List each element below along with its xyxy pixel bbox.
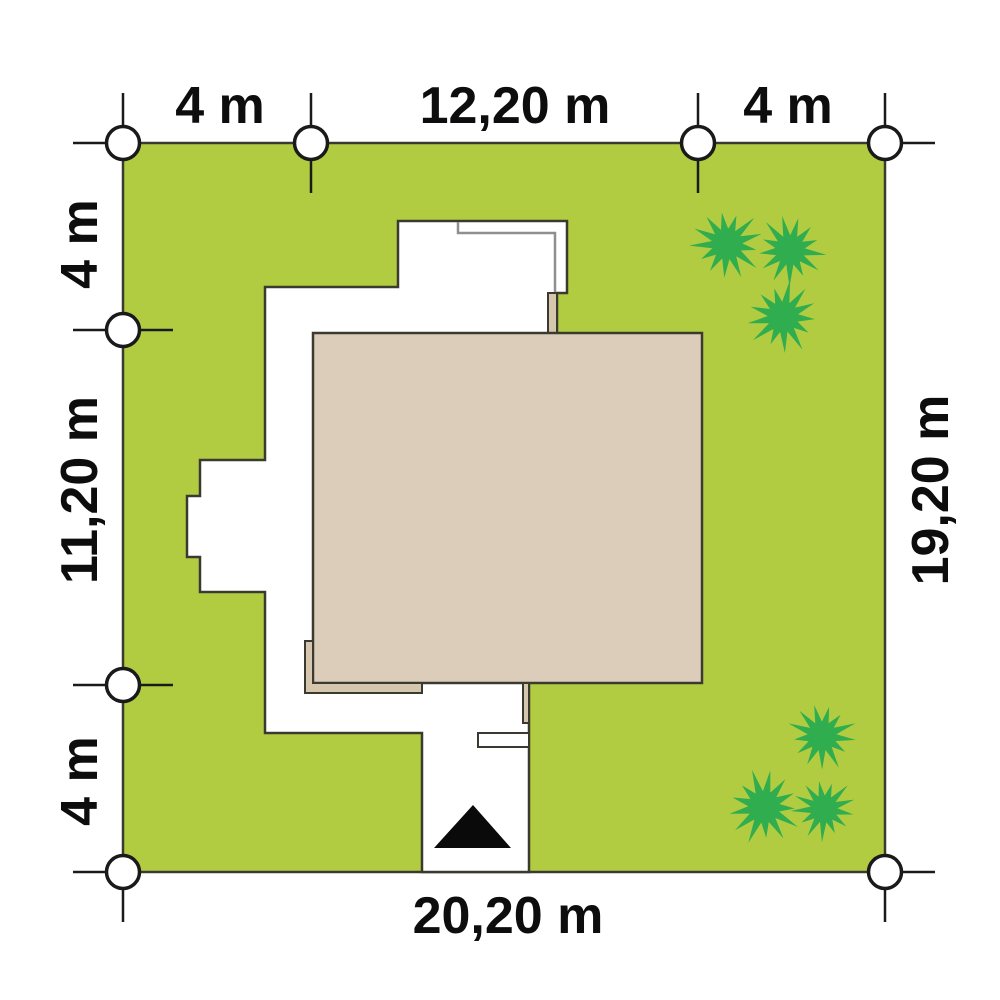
chimney-strip xyxy=(548,293,557,337)
survey-marker-icon xyxy=(869,856,902,889)
dimension-label-right-0: 19,20 m xyxy=(902,395,960,586)
dimension-label-left-2: 4 m xyxy=(51,736,109,826)
dimension-label-left-0: 4 m xyxy=(51,199,109,289)
survey-marker-icon xyxy=(869,127,902,160)
survey-marker-icon xyxy=(107,669,140,702)
site-plan: 4 m12,20 m4 m4 m11,20 m4 m19,20 m20,20 m xyxy=(0,0,1000,1000)
dimension-label-top-2: 4 m xyxy=(743,77,833,135)
entrance-step xyxy=(478,733,529,747)
dimension-label-left-1: 11,20 m xyxy=(51,396,109,584)
survey-marker-icon xyxy=(107,314,140,347)
survey-marker-icon xyxy=(107,856,140,889)
wall-strip xyxy=(523,683,529,723)
survey-marker-icon xyxy=(295,127,328,160)
survey-marker-icon xyxy=(682,127,715,160)
house-roof xyxy=(313,333,702,683)
dimension-label-top-1: 12,20 m xyxy=(420,77,611,135)
site-plan-canvas: 4 m12,20 m4 m4 m11,20 m4 m19,20 m20,20 m xyxy=(0,0,1000,1000)
survey-marker-icon xyxy=(107,127,140,160)
dimension-label-top-0: 4 m xyxy=(175,77,265,135)
dimension-label-bottom-0: 20,20 m xyxy=(413,887,604,945)
